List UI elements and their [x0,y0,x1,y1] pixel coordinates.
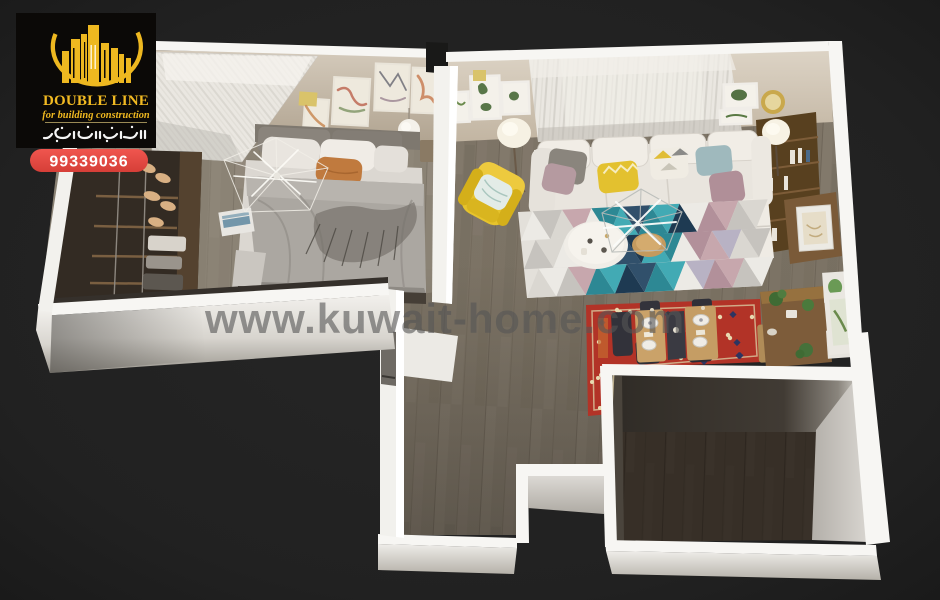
svg-text:99339036: 99339036 [49,154,128,171]
svg-text:for building construction: for building construction [42,110,150,121]
svg-text:DOUBLE LINE: DOUBLE LINE [43,93,149,109]
svg-text:www.kuwait-home.com: www.kuwait-home.com [204,295,685,342]
